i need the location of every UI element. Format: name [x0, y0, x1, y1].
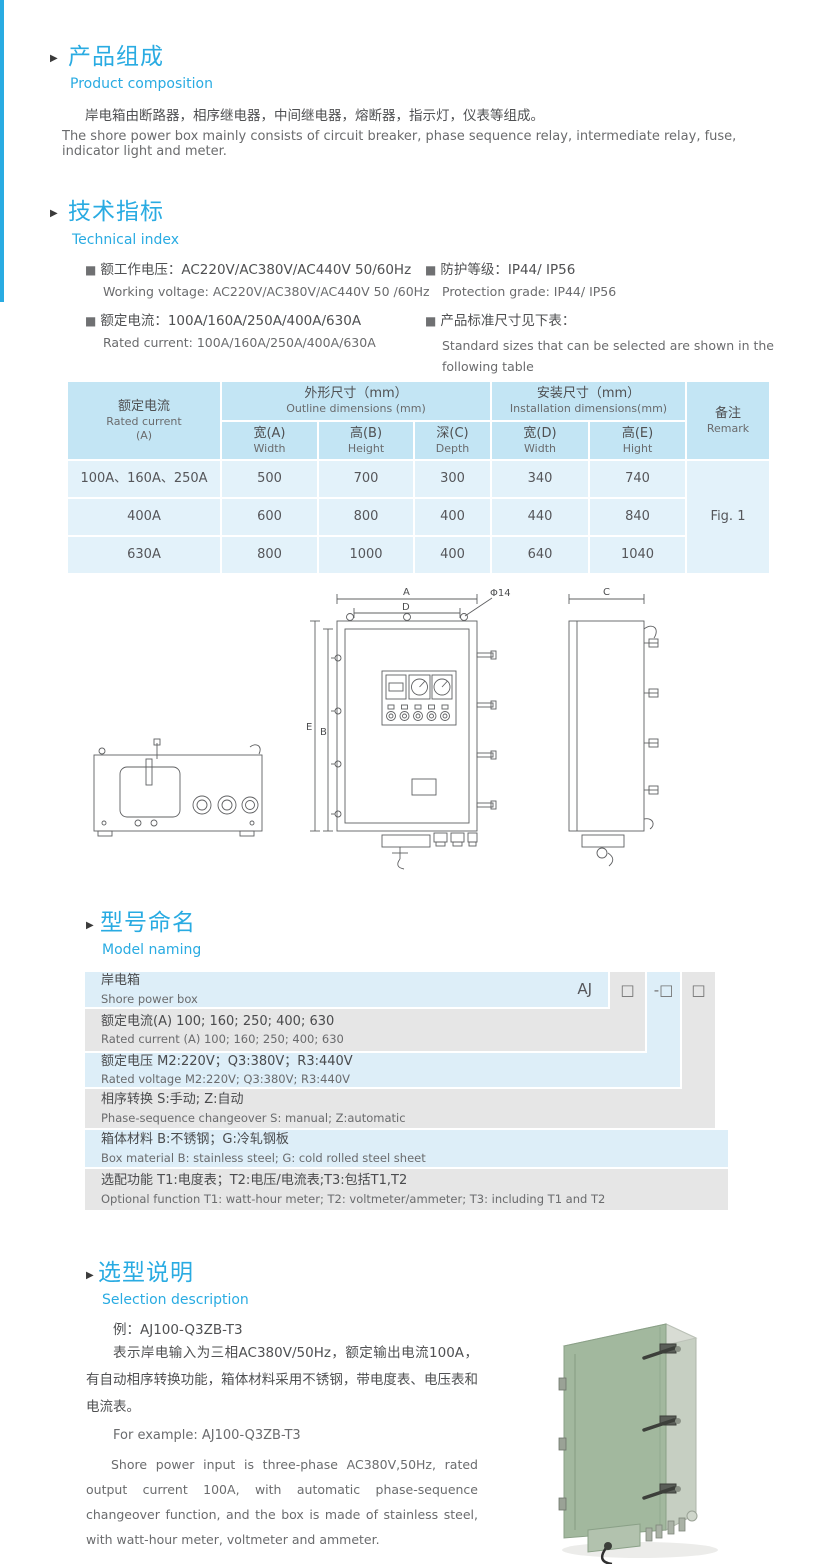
selection-desc-en: Shore power input is three-phase AC380V,…	[86, 1452, 478, 1552]
technical-title-en: Technical index	[72, 233, 179, 247]
spec-working-voltage-en: Working voltage: AC220V/AC380V/AC440V 50…	[103, 284, 430, 299]
naming-row-optional-function: 选配功能 T1:电度表；T2:电压/电流表;T3:包括T1,T2 Optiona…	[85, 1169, 728, 1210]
naming-row-rated-voltage: 额定电压 M2:220V；Q3:380V；R3:440V Rated volta…	[85, 1053, 680, 1087]
technical-title-zh: 技术指标	[68, 201, 164, 224]
table-row-current: 630A	[68, 537, 220, 573]
naming-row-box-material: 箱体材料 B:不锈钢；G:冷轧钢板 Box material B: stainl…	[85, 1130, 728, 1167]
dim-label-b: B	[320, 727, 327, 738]
model-code-column-voltage: -□	[647, 972, 680, 1087]
model-code-column-current: □	[610, 972, 645, 1051]
square-bullet-icon: ■	[425, 315, 436, 327]
code-box-icon: □	[691, 981, 705, 999]
datasheet-page: ▶ 产品组成 Product composition 岸电箱由断路器，相序继电器…	[0, 0, 830, 1568]
spec-standard-sizes: ■产品标准尺寸见下表：	[425, 309, 575, 329]
table-header-outline-dimensions: 外形尺寸（mm） Outline dimensions (mm)	[222, 382, 490, 420]
left-accent-bar	[0, 0, 4, 302]
table-cell: 1000	[319, 537, 413, 573]
side-clamps	[644, 639, 658, 794]
selection-title-en: Selection description	[102, 1293, 249, 1307]
section-marker-icon: ▶	[50, 209, 58, 219]
dim-label-d: D	[402, 602, 410, 613]
bottom-view	[94, 739, 262, 836]
table-cell: 840	[590, 499, 685, 535]
naming-title-en: Model naming	[102, 943, 201, 957]
figure-reference: Fig. 1	[687, 461, 769, 573]
composition-title-en: Product composition	[70, 77, 213, 91]
meter-panel	[382, 671, 456, 725]
table-subheader-width-a: 宽(A)Width	[222, 422, 317, 459]
table-cell: 740	[590, 461, 685, 497]
spec-rated-current-en: Rated current: 100A/160A/250A/400A/630A	[103, 335, 376, 350]
hinges	[331, 655, 341, 817]
spec-standard-sizes-en: Standard sizes that can be selected are …	[442, 335, 774, 377]
section-marker-icon: ▶	[86, 921, 94, 931]
section-marker-icon: ▶	[50, 54, 58, 64]
selection-example-zh: 例：AJ100-Q3ZB-T3	[113, 1318, 243, 1338]
spec-protection-grade: ■防护等级：IP44/ IP56	[425, 258, 575, 278]
naming-row-phase-sequence: 相序转换 S:手动; Z:自动 Phase-sequence changeove…	[85, 1089, 715, 1128]
dim-label-e: E	[306, 722, 312, 733]
table-row-current: 100A、160A、250A	[68, 461, 220, 497]
table-subheader-hight-e: 高(E)Hight	[590, 422, 685, 459]
selection-example-en: For example: AJ100-Q3ZB-T3	[113, 1428, 301, 1443]
table-header-installation-dimensions: 安装尺寸（mm） Installation dimensions(mm)	[492, 382, 685, 420]
table-cell: 640	[492, 537, 588, 573]
dim-label-c: C	[603, 587, 610, 598]
table-cell: 800	[319, 499, 413, 535]
table-cell: 300	[415, 461, 490, 497]
naming-row-shore-power-box: 岸电箱 Shore power box AJ	[85, 972, 608, 1007]
side-view: C	[569, 587, 658, 866]
table-cell: 1040	[590, 537, 685, 573]
indicator-lights	[387, 705, 450, 721]
selection-desc-zh: 表示岸电输入为三相AC380V/50Hz，额定输出电流100A，有自动相序转换功…	[86, 1340, 478, 1421]
section-marker-icon: ▶	[86, 1271, 94, 1281]
spec-working-voltage: ■额工作电压：AC220V/AC380V/AC440V 50/60Hz	[85, 258, 411, 278]
table-header-remark: 备注 Remark	[687, 382, 769, 459]
latches	[477, 651, 496, 809]
square-bullet-icon: ■	[85, 264, 96, 276]
model-naming-diagram: 岸电箱 Shore power box AJ 额定电流(A) 100; 160;…	[85, 972, 728, 1210]
spec-protection-grade-en: Protection grade: IP44/ IP56	[442, 284, 616, 299]
table-cell: 340	[492, 461, 588, 497]
table-subheader-width-d: 宽(D)Width	[492, 422, 588, 459]
table-cell: 800	[222, 537, 317, 573]
table-subheader-depth-c: 深(C)Depth	[415, 422, 490, 459]
selection-title-zh: 选型说明	[98, 1262, 194, 1285]
outline-drawing: A D Φ14 E B	[82, 583, 742, 893]
table-cell: 400	[415, 499, 490, 535]
table-cell: 400	[415, 537, 490, 573]
product-photo-green-cabinet	[548, 1312, 732, 1564]
code-box-icon: □	[659, 981, 673, 999]
square-bullet-icon: ■	[425, 264, 436, 276]
dim-label-a: A	[403, 587, 410, 598]
model-code-column-function: □	[682, 972, 715, 1128]
composition-body-zh: 岸电箱由断路器，相序继电器，中间继电器，熔断器，指示灯，仪表等组成。	[85, 104, 775, 124]
naming-row-rated-current: 额定电流(A) 100; 160; 250; 400; 630 Rated cu…	[85, 1009, 645, 1051]
dimension-table: 额定电流 Rated current (A) 外形尺寸（mm） Outline …	[68, 382, 769, 573]
composition-body-en: The shore power box mainly consists of c…	[62, 129, 782, 159]
table-header-rated-current: 额定电流 Rated current (A)	[68, 382, 220, 459]
square-bullet-icon: ■	[85, 315, 96, 327]
table-cell: 600	[222, 499, 317, 535]
table-cell: 700	[319, 461, 413, 497]
spec-rated-current: ■额定电流：100A/160A/250A/400A/630A	[85, 309, 361, 329]
code-box-icon: □	[620, 981, 634, 999]
dim-label-hole: Φ14	[490, 588, 511, 599]
table-row-current: 400A	[68, 499, 220, 535]
table-subheader-height-b: 高(B)Height	[319, 422, 413, 459]
model-prefix: AJ	[577, 980, 592, 998]
table-cell: 500	[222, 461, 317, 497]
table-cell: 440	[492, 499, 588, 535]
front-view: A D Φ14 E B	[306, 587, 511, 869]
composition-title-zh: 产品组成	[68, 46, 164, 69]
naming-title-zh: 型号命名	[100, 912, 196, 935]
